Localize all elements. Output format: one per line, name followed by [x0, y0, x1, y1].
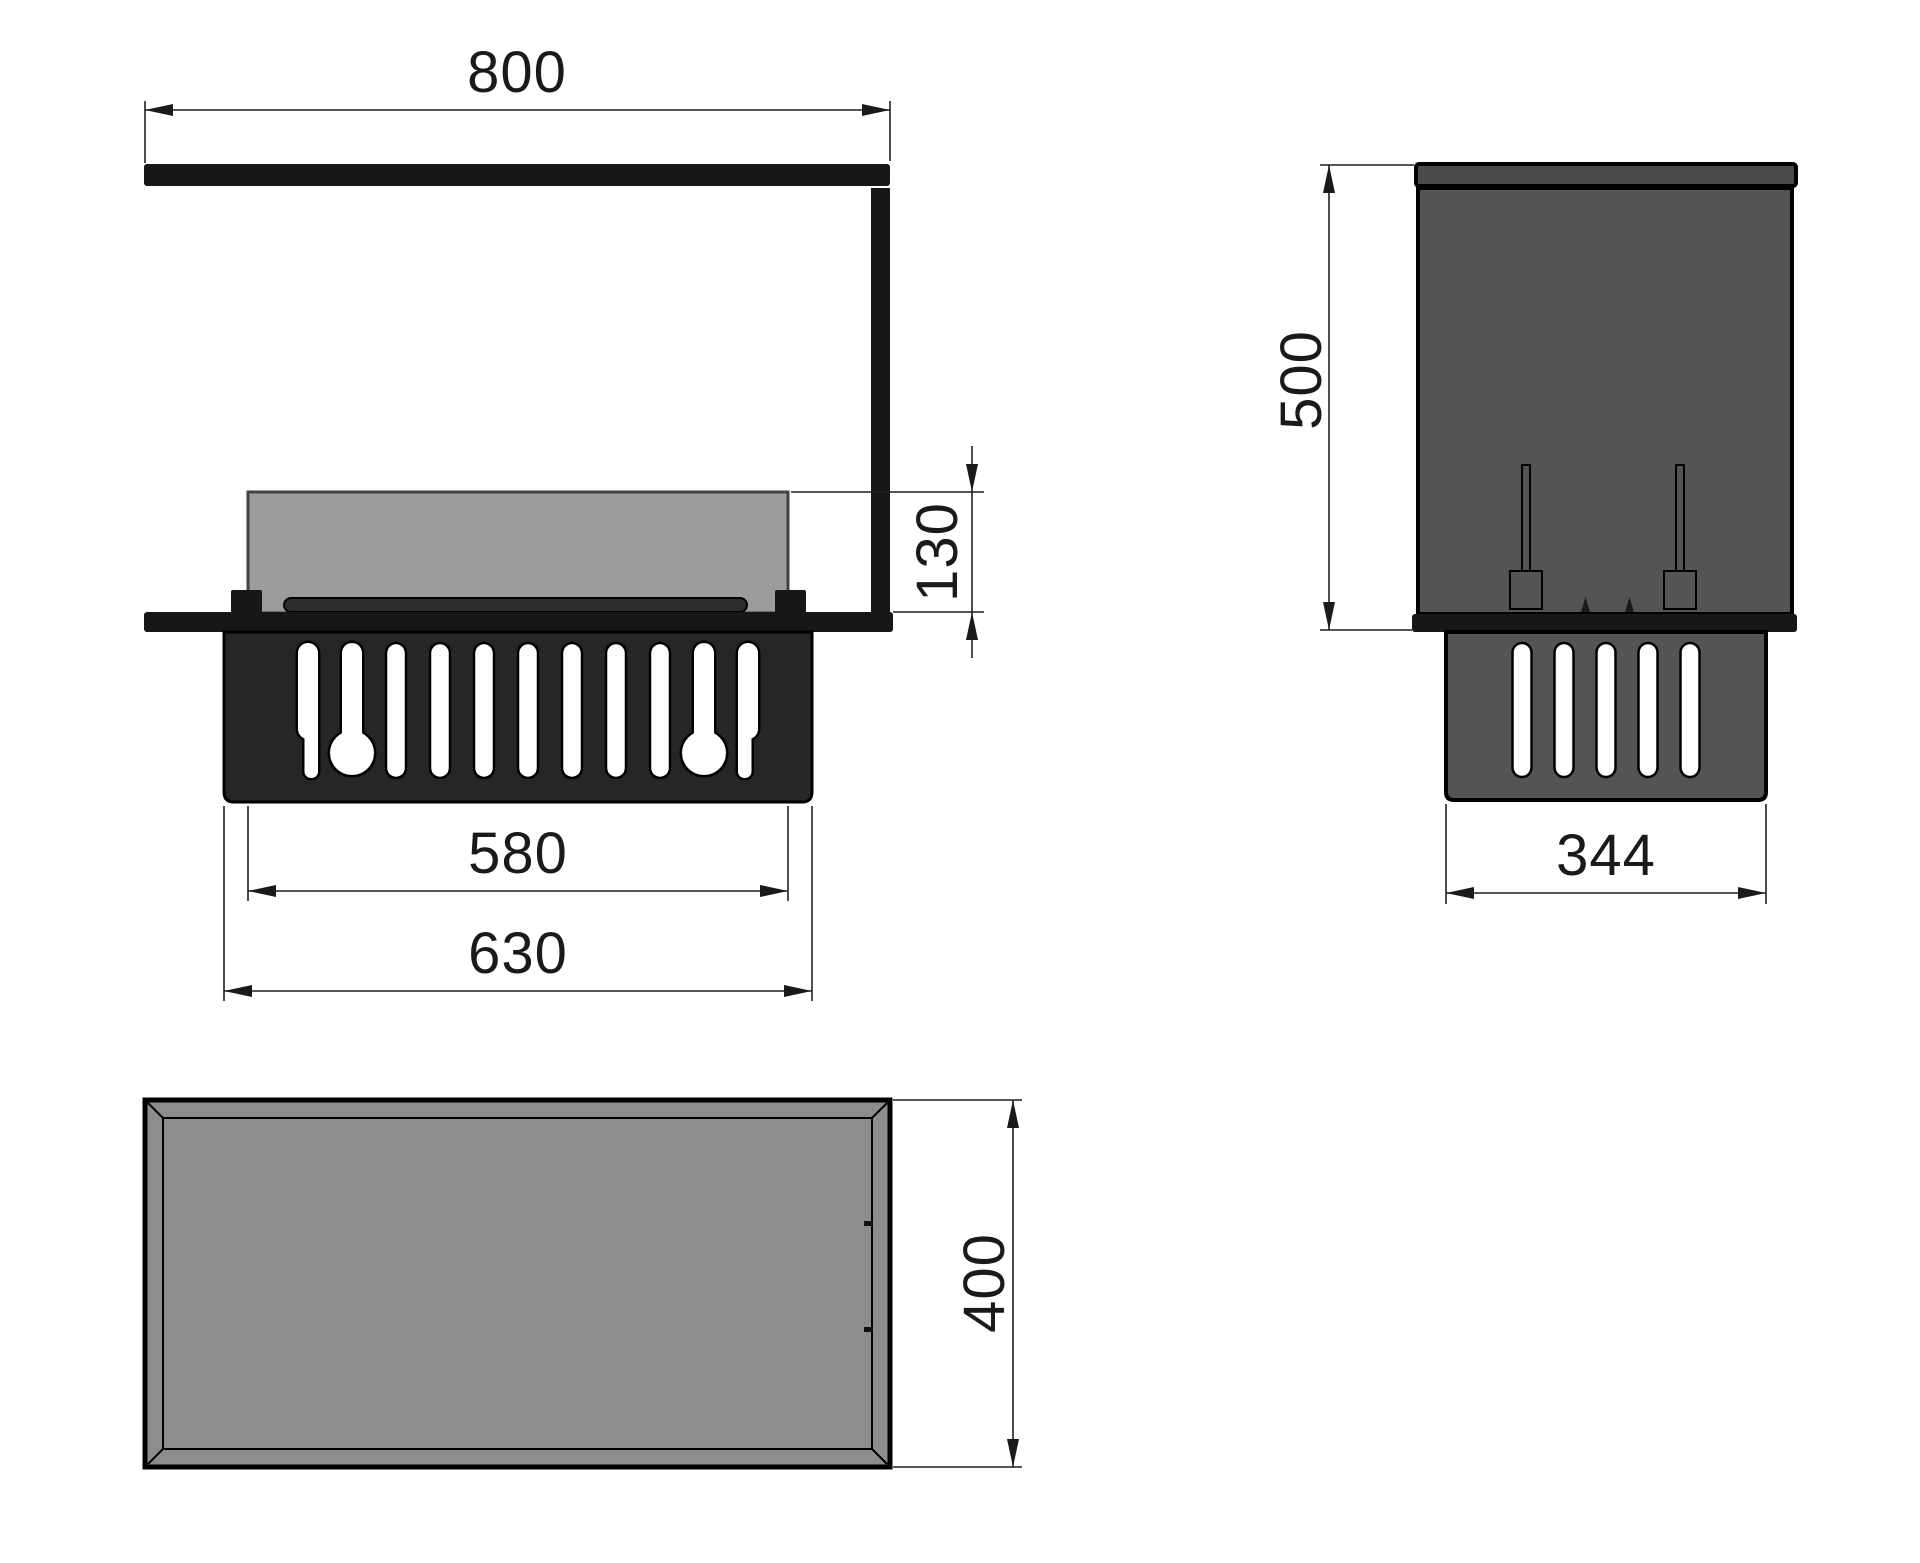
arrowhead	[1323, 165, 1335, 193]
right-side-panel	[871, 188, 890, 612]
top-shelf	[144, 164, 890, 186]
mounting-flange-side	[1412, 614, 1797, 632]
vent-slot	[1639, 643, 1658, 777]
arrowhead	[248, 885, 276, 897]
technical-drawing: 800 130 580 630	[0, 0, 1920, 1563]
arrowhead	[784, 985, 812, 997]
arrowhead	[966, 464, 978, 492]
dimension-label-630: 630	[468, 921, 568, 986]
arrowhead	[760, 885, 788, 897]
vent-slot	[650, 643, 670, 778]
arrowhead	[966, 612, 978, 640]
vent-slot	[430, 643, 450, 778]
keyhole-opening	[682, 731, 726, 775]
vent-slot	[562, 643, 582, 778]
vent-slot	[518, 643, 538, 778]
side-body	[1418, 188, 1792, 614]
support-foot-left	[1510, 571, 1542, 609]
arrowhead	[1738, 887, 1766, 899]
vent-slot	[1555, 643, 1574, 777]
dimension-label-344: 344	[1556, 823, 1656, 888]
hook-slot-opening	[305, 698, 319, 778]
vent-slot	[474, 643, 494, 778]
arrowhead	[1007, 1100, 1019, 1128]
arrowhead	[1007, 1439, 1019, 1467]
top-view: 400	[145, 1100, 1022, 1467]
support-rod-right	[1676, 465, 1684, 571]
dimension-label-580: 580	[468, 821, 568, 886]
top-face	[145, 1100, 890, 1467]
keyhole-opening	[342, 643, 362, 743]
arrowhead	[1446, 887, 1474, 899]
dimension-500: 500	[1269, 165, 1414, 630]
vent-slot	[1597, 643, 1616, 777]
dimension-580: 580	[248, 806, 788, 901]
mounting-flange	[144, 612, 893, 632]
support-foot-right	[1664, 571, 1696, 609]
clamp-mark	[864, 1221, 873, 1226]
burner-tray	[284, 598, 747, 612]
dimension-400: 400	[893, 1100, 1022, 1467]
dimension-800: 800	[145, 40, 890, 163]
dimension-label-500: 500	[1269, 330, 1334, 430]
dimension-label-130: 130	[905, 502, 970, 602]
vent-slot	[1681, 643, 1700, 777]
clamp-mark	[864, 1327, 873, 1332]
arrowhead	[224, 985, 252, 997]
vent-slot	[606, 643, 626, 778]
support-rod-left	[1522, 465, 1530, 571]
vent-slot	[386, 643, 406, 778]
side-view: 500 344	[1269, 164, 1797, 904]
arrowhead	[145, 104, 173, 116]
keyhole-opening	[694, 643, 714, 743]
dimension-344: 344	[1446, 804, 1766, 904]
front-view: 800 130 580 630	[144, 40, 984, 1001]
dimension-label-400: 400	[952, 1233, 1017, 1333]
arrowhead	[1323, 602, 1335, 630]
keyhole-opening	[330, 731, 374, 775]
drawing-canvas: 800 130 580 630	[0, 0, 1920, 1563]
arrowhead	[862, 104, 890, 116]
glass-panel	[248, 492, 788, 613]
glass-clamp-right	[775, 590, 806, 613]
glass-clamp-left	[231, 590, 262, 613]
dimension-label-800: 800	[467, 40, 567, 105]
hook-slot-opening	[738, 698, 752, 778]
vent-slot	[1513, 643, 1532, 777]
top-shelf-edge	[1416, 164, 1796, 186]
